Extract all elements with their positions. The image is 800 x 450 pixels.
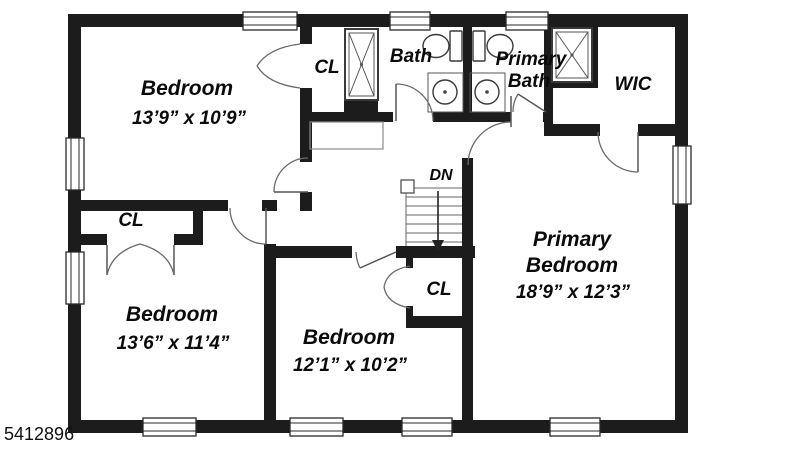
sink-primary-bath xyxy=(470,73,505,112)
closet-label-under-stairs: CL xyxy=(426,279,451,301)
room-label-bedroom-top-left: Bedroom xyxy=(141,77,233,101)
closet-label-left: CL xyxy=(118,210,143,232)
sink-bath xyxy=(428,73,463,112)
down-arrow-icon xyxy=(432,191,444,252)
room-label-primary-bath-line1: Primary xyxy=(496,49,567,71)
room-label-primary-bath-line2: Bath xyxy=(508,71,550,93)
listing-number: 5412896 xyxy=(4,424,74,445)
stairs-direction-label: DN xyxy=(429,167,452,185)
room-dims-bedroom-bottom-mid: 12’1” x 10’2” xyxy=(293,355,407,377)
floor-plan: Bedroom 13’9” x 10’9” Bedroom 13’6” x 11… xyxy=(0,0,800,450)
room-label-bedroom-bottom-left: Bedroom xyxy=(126,303,218,327)
room-label-primary-bedroom-line2: Bedroom xyxy=(526,254,618,278)
stairs xyxy=(310,122,462,252)
shower-bath xyxy=(345,29,378,100)
room-label-wic: WIC xyxy=(615,74,652,96)
room-label-bath: Bath xyxy=(390,46,432,68)
room-label-bedroom-bottom-mid: Bedroom xyxy=(303,326,395,350)
closet-label-top: CL xyxy=(314,57,339,79)
room-dims-bedroom-top-left: 13’9” x 10’9” xyxy=(132,108,246,130)
room-dims-bedroom-bottom-left: 13’6” x 11’4” xyxy=(117,333,230,355)
room-label-primary-bedroom-line1: Primary xyxy=(533,228,611,252)
room-dims-primary-bedroom: 18’9” x 12’3” xyxy=(516,282,630,304)
